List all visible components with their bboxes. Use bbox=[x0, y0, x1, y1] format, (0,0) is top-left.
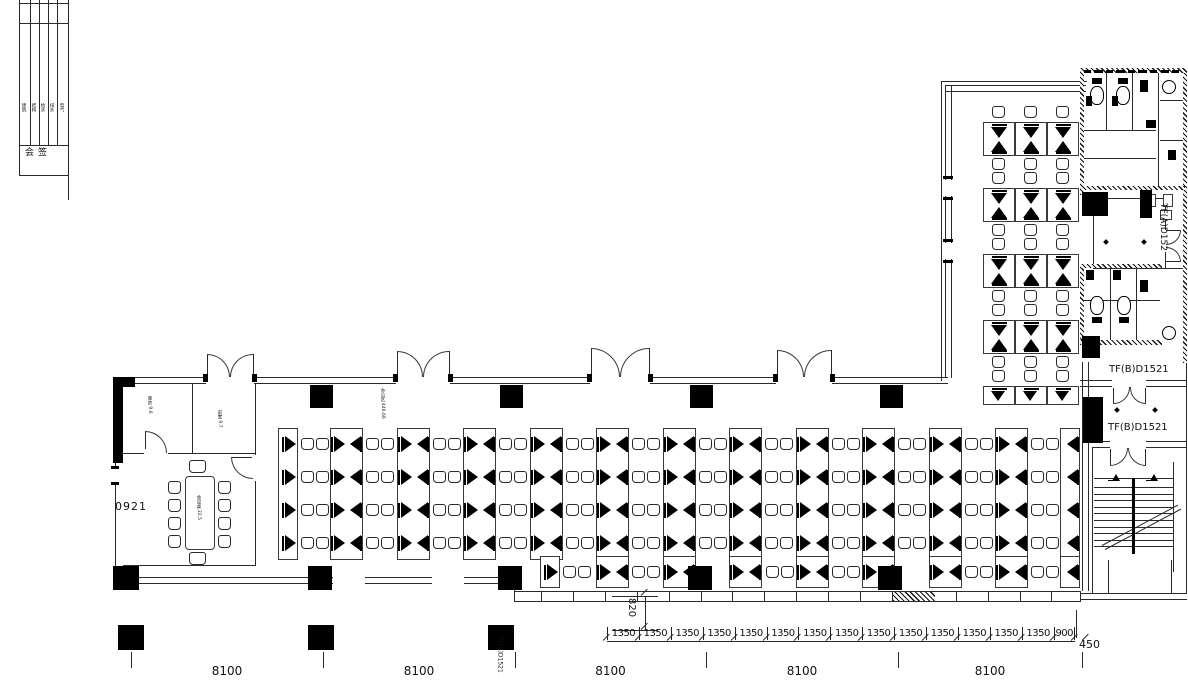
chair bbox=[433, 438, 446, 450]
toilet-fixture bbox=[1090, 86, 1104, 105]
chair bbox=[366, 438, 379, 450]
seat-glyph bbox=[1055, 339, 1071, 350]
seat-glyph bbox=[1023, 391, 1037, 401]
door-code-label: 0921 bbox=[115, 501, 147, 513]
wall-line bbox=[1106, 73, 1107, 130]
chair bbox=[578, 566, 591, 578]
chair bbox=[647, 438, 660, 450]
hatched-wall bbox=[1080, 264, 1162, 268]
seat-glyph bbox=[493, 503, 495, 518]
toilet-fixture bbox=[1090, 296, 1104, 315]
wall-line bbox=[1082, 130, 1156, 131]
fixture-mass bbox=[1083, 397, 1103, 443]
chair bbox=[1031, 504, 1044, 516]
seat-glyph bbox=[360, 503, 362, 518]
chair bbox=[218, 499, 231, 512]
door-opening bbox=[432, 575, 464, 585]
seat-glyph bbox=[1025, 503, 1027, 518]
chair bbox=[1056, 370, 1069, 382]
wall-line bbox=[941, 81, 1087, 82]
chair bbox=[581, 438, 594, 450]
dim-module-label: 1350 bbox=[703, 627, 735, 640]
stair-arrow bbox=[1146, 480, 1156, 481]
seat-glyph bbox=[991, 273, 1007, 284]
chair bbox=[1056, 106, 1069, 118]
chair bbox=[1024, 356, 1037, 368]
door-swing-arc bbox=[1166, 247, 1181, 262]
chair bbox=[965, 504, 978, 516]
seat-glyph bbox=[1023, 325, 1039, 336]
seat-glyph bbox=[866, 502, 877, 518]
basin-fixture bbox=[1162, 80, 1176, 94]
seat-glyph bbox=[597, 470, 599, 485]
seat-glyph bbox=[999, 564, 1010, 580]
dim-module-label: 1350 bbox=[607, 627, 639, 640]
strip-divider bbox=[605, 591, 606, 602]
chair bbox=[898, 537, 911, 549]
seat-glyph bbox=[991, 339, 1007, 350]
chair bbox=[499, 438, 512, 450]
seat-glyph bbox=[1056, 190, 1071, 192]
seat-glyph bbox=[730, 565, 732, 580]
meeting-table-label: 会议桌 22.5 bbox=[195, 495, 200, 520]
chair bbox=[965, 537, 978, 549]
chair bbox=[632, 438, 645, 450]
chair bbox=[499, 537, 512, 549]
chair bbox=[1031, 438, 1044, 450]
wall-line bbox=[951, 85, 952, 378]
column bbox=[587, 374, 592, 382]
seat-glyph bbox=[863, 503, 865, 518]
seat-glyph bbox=[560, 503, 562, 518]
seat-glyph bbox=[930, 536, 932, 551]
door-leaf bbox=[649, 348, 650, 377]
fixture-mass bbox=[1113, 270, 1121, 280]
column bbox=[310, 385, 333, 408]
chair bbox=[366, 504, 379, 516]
wall-line bbox=[1080, 593, 1187, 594]
column bbox=[690, 385, 713, 408]
fixture-mass bbox=[1140, 190, 1152, 218]
column bbox=[830, 374, 835, 382]
chair bbox=[832, 537, 845, 549]
seat-glyph bbox=[730, 536, 732, 551]
seat-glyph bbox=[800, 564, 811, 580]
seat-glyph bbox=[992, 124, 1007, 126]
chair bbox=[1024, 106, 1037, 118]
chair bbox=[514, 504, 527, 516]
strip-divider bbox=[764, 591, 765, 602]
chair bbox=[765, 471, 778, 483]
seat-glyph bbox=[1055, 193, 1071, 204]
ceiling-mark bbox=[1114, 407, 1120, 413]
chair bbox=[913, 504, 926, 516]
strip-divider bbox=[956, 591, 957, 602]
dim-module-label: 1350 bbox=[862, 627, 894, 640]
chair bbox=[566, 471, 579, 483]
seat-glyph bbox=[863, 536, 865, 551]
seat-glyph bbox=[401, 436, 412, 452]
seat-glyph bbox=[285, 535, 296, 551]
chair bbox=[965, 471, 978, 483]
seat-glyph bbox=[1024, 218, 1039, 220]
seat-glyph bbox=[531, 470, 533, 485]
door-opening bbox=[943, 243, 953, 259]
seat-glyph bbox=[427, 470, 429, 485]
seat-glyph bbox=[560, 470, 562, 485]
seat-glyph bbox=[667, 469, 678, 485]
seat-glyph bbox=[398, 503, 400, 518]
chair bbox=[847, 438, 860, 450]
seat-glyph bbox=[467, 535, 478, 551]
door-swing-arc bbox=[1130, 387, 1147, 404]
chair bbox=[381, 438, 394, 450]
seat-glyph bbox=[464, 536, 466, 551]
seat-glyph bbox=[334, 535, 345, 551]
strip-divider bbox=[732, 591, 733, 602]
chair bbox=[913, 537, 926, 549]
room-tfb-lower-label: TF(B)D1521 bbox=[1108, 422, 1168, 433]
fixture-mass bbox=[1094, 70, 1103, 73]
strip-divider bbox=[541, 591, 542, 602]
chair bbox=[168, 535, 181, 548]
chair bbox=[581, 537, 594, 549]
chair bbox=[980, 566, 993, 578]
chair bbox=[992, 106, 1005, 118]
fixture-mass bbox=[1084, 70, 1091, 73]
chair bbox=[632, 537, 645, 549]
seat-glyph bbox=[996, 565, 998, 580]
seat-glyph bbox=[1056, 350, 1071, 352]
fixture-mass bbox=[1082, 192, 1108, 216]
chair bbox=[514, 471, 527, 483]
chair bbox=[913, 471, 926, 483]
strip-divider bbox=[1020, 591, 1021, 602]
wall-line bbox=[123, 565, 256, 566]
seat-glyph bbox=[664, 437, 666, 452]
seat-glyph bbox=[959, 470, 961, 485]
seat-glyph bbox=[991, 391, 1005, 401]
seat-glyph bbox=[464, 470, 466, 485]
seat-glyph bbox=[730, 503, 732, 518]
seat-glyph bbox=[331, 470, 333, 485]
wall-line bbox=[19, 0, 20, 175]
chair bbox=[714, 504, 727, 516]
chair bbox=[980, 438, 993, 450]
door-swing-arc bbox=[230, 354, 253, 377]
chair bbox=[965, 566, 978, 578]
seat-glyph bbox=[427, 503, 429, 518]
room-a-label: 库房 9.6 bbox=[146, 396, 151, 414]
chair bbox=[1046, 438, 1059, 450]
dim-module-label: 1350 bbox=[926, 627, 958, 640]
chair bbox=[514, 537, 527, 549]
chair bbox=[980, 537, 993, 549]
door-jamb bbox=[943, 197, 953, 200]
bay-dim-label: 8100 bbox=[706, 664, 898, 680]
fixture-mass bbox=[1140, 80, 1148, 92]
dim-module-label: 1350 bbox=[830, 627, 862, 640]
door-swing-arc bbox=[591, 348, 620, 377]
fixture-mass bbox=[1168, 150, 1176, 160]
fixture-mass bbox=[1112, 96, 1118, 106]
chair bbox=[992, 172, 1005, 184]
chair bbox=[699, 471, 712, 483]
seat-glyph bbox=[999, 535, 1010, 551]
seat-glyph bbox=[733, 502, 744, 518]
seat-glyph bbox=[1056, 152, 1071, 154]
fixture-mass bbox=[1119, 317, 1129, 323]
fixture-mass bbox=[1082, 336, 1100, 358]
dim-module-label: 1350 bbox=[894, 627, 926, 640]
seat-glyph bbox=[797, 565, 799, 580]
chair bbox=[714, 537, 727, 549]
depth-dim-label: 820 bbox=[626, 598, 637, 617]
seat-glyph bbox=[759, 503, 761, 518]
seat-glyph bbox=[560, 536, 562, 551]
door-opening bbox=[252, 455, 259, 481]
seat-glyph bbox=[1024, 256, 1039, 258]
fixture-mass bbox=[1172, 70, 1179, 73]
door-jamb bbox=[111, 466, 119, 469]
chair bbox=[1024, 238, 1037, 250]
chair bbox=[301, 504, 314, 516]
seat-glyph bbox=[331, 503, 333, 518]
seat-glyph bbox=[664, 470, 666, 485]
seat-glyph bbox=[800, 469, 811, 485]
chair bbox=[316, 537, 329, 549]
seat-glyph bbox=[398, 536, 400, 551]
seat-glyph bbox=[360, 470, 362, 485]
chair bbox=[366, 471, 379, 483]
chair bbox=[316, 438, 329, 450]
chair bbox=[566, 537, 579, 549]
seat-glyph bbox=[1024, 322, 1039, 324]
wall-line bbox=[945, 85, 946, 378]
seat-glyph bbox=[800, 436, 811, 452]
fixture-mass bbox=[1161, 70, 1169, 73]
strip-divider bbox=[1051, 591, 1052, 602]
chair bbox=[1031, 537, 1044, 549]
column bbox=[773, 374, 778, 382]
seat-glyph bbox=[933, 502, 944, 518]
seat-glyph bbox=[693, 437, 695, 452]
seat-glyph bbox=[664, 536, 666, 551]
seat-glyph bbox=[401, 502, 412, 518]
chair bbox=[189, 552, 206, 565]
door-swing-arc bbox=[777, 350, 804, 377]
chair bbox=[847, 566, 860, 578]
chair bbox=[632, 566, 645, 578]
seat-glyph bbox=[991, 325, 1007, 336]
seat-glyph bbox=[282, 437, 284, 452]
chair bbox=[1024, 224, 1037, 236]
chair bbox=[980, 504, 993, 516]
seat-glyph bbox=[282, 470, 284, 485]
seat-glyph bbox=[863, 565, 865, 580]
seat-glyph bbox=[826, 437, 828, 452]
seat-glyph bbox=[534, 469, 545, 485]
seat-glyph bbox=[600, 535, 611, 551]
chair bbox=[1024, 290, 1037, 302]
seat-glyph bbox=[600, 436, 611, 452]
seat-glyph bbox=[464, 503, 466, 518]
door-swing-arc bbox=[1113, 387, 1130, 404]
seat-glyph bbox=[933, 535, 944, 551]
wall-line bbox=[48, 0, 49, 145]
seat-glyph bbox=[826, 470, 828, 485]
titleblock-sign-label: 会签 bbox=[25, 149, 51, 159]
ceiling-mark bbox=[1141, 239, 1147, 245]
seat-glyph bbox=[930, 503, 932, 518]
seat-glyph bbox=[999, 469, 1010, 485]
seat-glyph bbox=[1024, 124, 1039, 126]
seat-glyph bbox=[1055, 127, 1071, 138]
ceiling-mark bbox=[1103, 239, 1109, 245]
seat-glyph bbox=[600, 564, 611, 580]
seat-glyph bbox=[626, 536, 628, 551]
seat-glyph bbox=[600, 469, 611, 485]
room-tfb-upper-label: TF(B)D1521 bbox=[1109, 364, 1169, 375]
seat-glyph bbox=[996, 437, 998, 452]
seat-glyph bbox=[534, 535, 545, 551]
seat-glyph bbox=[560, 437, 562, 452]
seat-glyph bbox=[398, 470, 400, 485]
seat-glyph bbox=[863, 437, 865, 452]
strip-divider bbox=[573, 591, 574, 602]
chair bbox=[1056, 356, 1069, 368]
seat-glyph bbox=[992, 388, 1007, 390]
seat-glyph bbox=[600, 502, 611, 518]
seat-glyph bbox=[597, 536, 599, 551]
fixture-mass bbox=[1118, 78, 1128, 84]
chair bbox=[1046, 504, 1059, 516]
wall-line bbox=[941, 81, 942, 381]
fixture-mass bbox=[1128, 70, 1135, 73]
seat-glyph bbox=[733, 436, 744, 452]
seat-glyph bbox=[493, 470, 495, 485]
door-swing-arc bbox=[423, 351, 449, 377]
seat-glyph bbox=[866, 436, 877, 452]
chair bbox=[448, 438, 461, 450]
seat-glyph bbox=[991, 141, 1007, 152]
fixture-mass bbox=[1086, 270, 1094, 280]
wall-line bbox=[68, 0, 69, 200]
door-swing-arc bbox=[231, 457, 253, 479]
chair bbox=[632, 504, 645, 516]
seat-glyph bbox=[285, 469, 296, 485]
seat-glyph bbox=[398, 437, 400, 452]
basin-fixture bbox=[1162, 326, 1176, 340]
seat-glyph bbox=[427, 536, 429, 551]
seat-glyph bbox=[797, 503, 799, 518]
wall-line bbox=[945, 91, 1086, 92]
wall-line bbox=[39, 0, 40, 145]
wall-line bbox=[1132, 73, 1133, 130]
hatched-wall bbox=[1080, 264, 1084, 344]
seat-glyph bbox=[1023, 127, 1039, 138]
office-area-label: 办公区 446.66 bbox=[379, 388, 384, 419]
chair bbox=[980, 471, 993, 483]
wall-line bbox=[1093, 268, 1183, 269]
chair bbox=[699, 504, 712, 516]
dim-module-label: 1350 bbox=[767, 627, 799, 640]
seat-glyph bbox=[1023, 339, 1039, 350]
seat-glyph bbox=[1023, 259, 1039, 270]
seat-glyph bbox=[759, 565, 761, 580]
seat-glyph bbox=[730, 470, 732, 485]
door-swing-arc bbox=[1166, 230, 1181, 245]
seat-glyph bbox=[467, 502, 478, 518]
chair bbox=[566, 504, 579, 516]
seat-glyph bbox=[933, 564, 944, 580]
seat-glyph bbox=[664, 565, 666, 580]
chair bbox=[168, 499, 181, 512]
seat-glyph bbox=[1055, 391, 1069, 401]
chair bbox=[647, 504, 660, 516]
seat-glyph bbox=[759, 470, 761, 485]
dim-line bbox=[607, 641, 1075, 642]
seat-glyph bbox=[992, 350, 1007, 352]
wall-line bbox=[514, 591, 515, 602]
seat-glyph bbox=[959, 437, 961, 452]
chair bbox=[780, 438, 793, 450]
dim-ext-line bbox=[612, 596, 658, 597]
door-swing-arc bbox=[397, 351, 423, 377]
wall-line bbox=[1160, 140, 1184, 141]
chair bbox=[381, 504, 394, 516]
chair bbox=[647, 537, 660, 549]
seat-glyph bbox=[1024, 388, 1039, 390]
stair-arrow bbox=[1108, 480, 1118, 481]
chair bbox=[301, 471, 314, 483]
chair bbox=[1046, 566, 1059, 578]
seat-glyph bbox=[1056, 284, 1071, 286]
dim-module-label: 1350 bbox=[735, 627, 767, 640]
seat-glyph bbox=[285, 436, 296, 452]
seat-glyph bbox=[1055, 141, 1071, 152]
seat-glyph bbox=[1056, 388, 1071, 390]
seat-glyph bbox=[360, 536, 362, 551]
door-leaf bbox=[831, 350, 832, 377]
seat-glyph bbox=[1023, 273, 1039, 284]
chair bbox=[433, 537, 446, 549]
column bbox=[880, 385, 903, 408]
seat-glyph bbox=[1056, 124, 1071, 126]
strip-divider bbox=[988, 591, 989, 602]
seat-glyph bbox=[667, 535, 678, 551]
seat-glyph bbox=[800, 535, 811, 551]
seat-glyph bbox=[282, 503, 284, 518]
seat-glyph bbox=[959, 536, 961, 551]
seat-glyph bbox=[863, 470, 865, 485]
strip-divider bbox=[828, 591, 829, 602]
seat-glyph bbox=[693, 503, 695, 518]
toilet-fixture bbox=[1116, 86, 1130, 105]
seat-glyph bbox=[992, 190, 1007, 192]
door-swing-arc bbox=[145, 431, 167, 453]
chair bbox=[780, 504, 793, 516]
door-jamb bbox=[943, 260, 953, 263]
seat-glyph bbox=[991, 259, 1007, 270]
stair-rail bbox=[1132, 478, 1135, 554]
wall-line bbox=[57, 0, 58, 145]
wall-line bbox=[1136, 268, 1137, 342]
chair bbox=[913, 438, 926, 450]
column bbox=[648, 374, 653, 382]
fixture-mass bbox=[1150, 70, 1157, 73]
seat-glyph bbox=[1055, 207, 1071, 218]
